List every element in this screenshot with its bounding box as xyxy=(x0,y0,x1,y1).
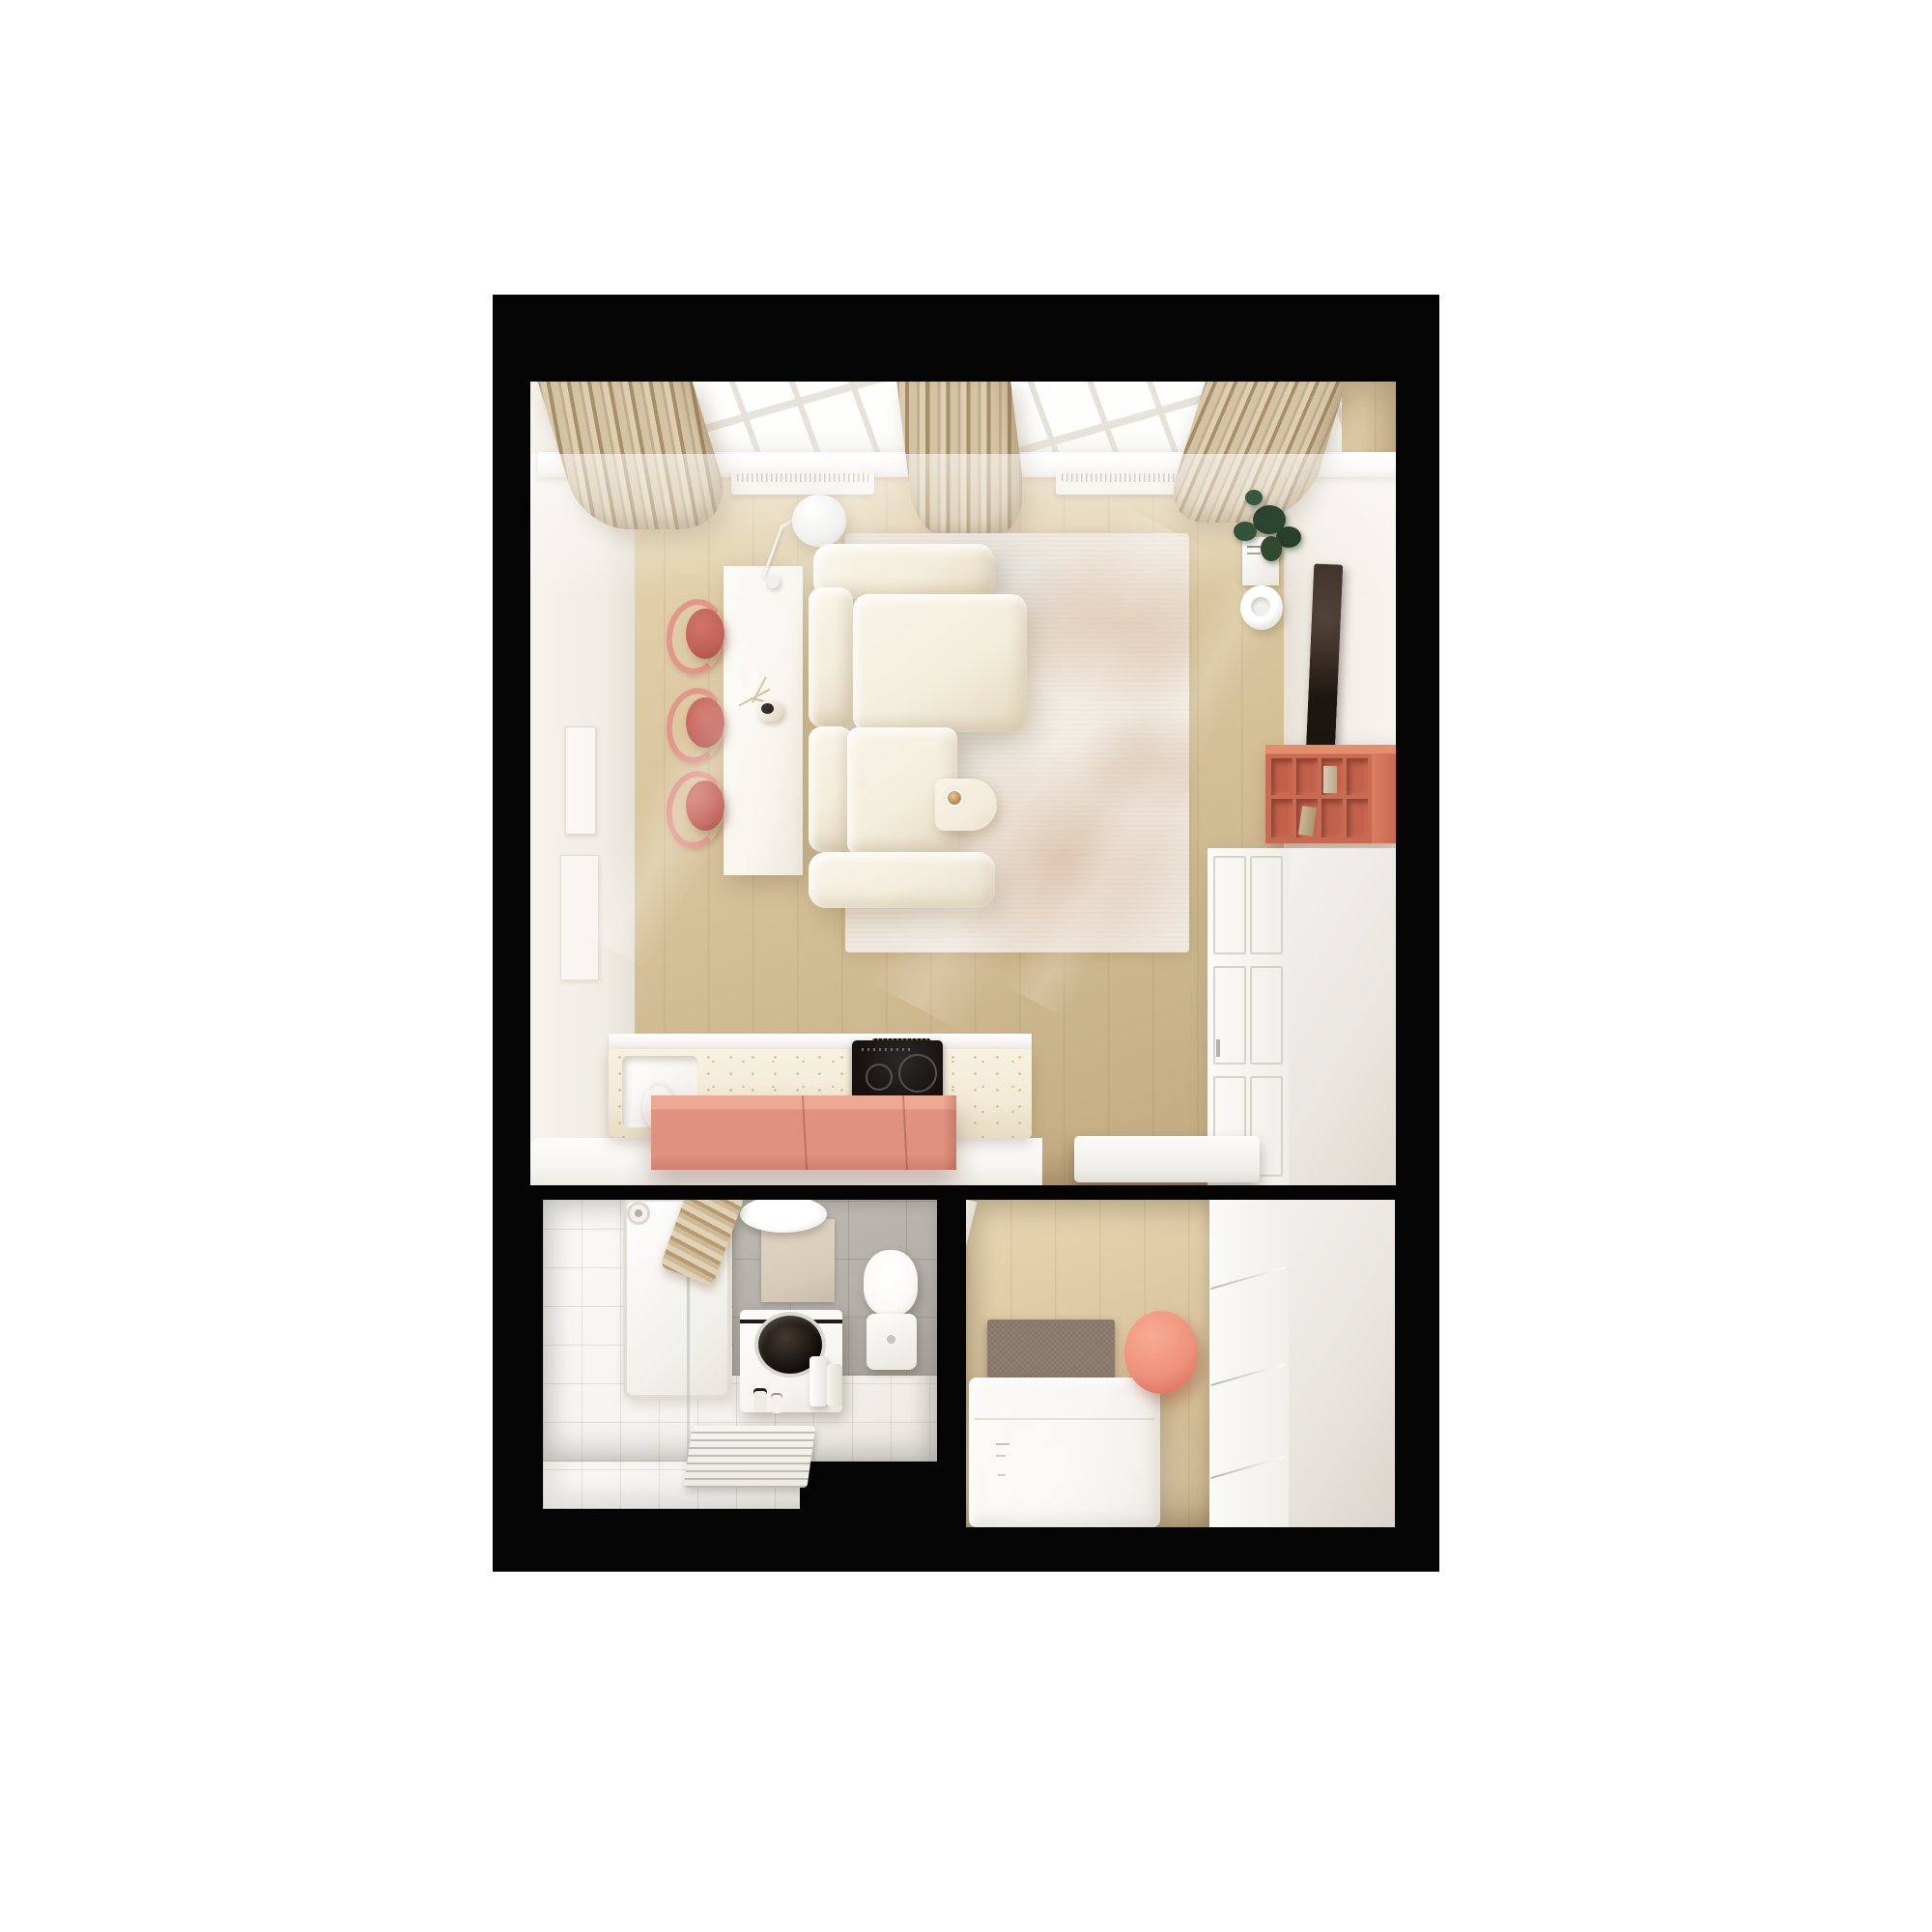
wardrobe-drawer-seam xyxy=(1210,1456,1285,1479)
curtain-middle xyxy=(896,382,1030,539)
detergent-bottle xyxy=(810,1356,827,1406)
coral-stool xyxy=(686,697,724,748)
wardrobe-drawer-seam xyxy=(1210,1363,1285,1386)
open-door-leaf xyxy=(966,1200,977,1281)
sofa-back-cushion xyxy=(809,587,853,727)
coral-kitchen-island xyxy=(651,1095,956,1170)
pillow-stitch xyxy=(996,1455,1006,1457)
sofa-chaise xyxy=(853,594,1027,732)
bed-duvet xyxy=(969,1378,1160,1527)
coral-pouf xyxy=(1124,1311,1198,1394)
potted-plant-leaf xyxy=(1245,490,1263,505)
floor-plan-canvas xyxy=(0,0,1932,1932)
wardrobe-side xyxy=(1289,1200,1395,1527)
wardrobe-drawer-seam xyxy=(1210,1266,1285,1290)
shelf-books xyxy=(1323,766,1337,793)
wall-bowl-inner xyxy=(1251,597,1270,616)
toilet-flush-button xyxy=(887,1335,895,1344)
shelf-side-face xyxy=(1372,753,1396,843)
coral-cube-shelf xyxy=(1265,745,1396,843)
living-room-kitchen xyxy=(530,382,1396,1185)
floor-lamp-shade xyxy=(792,495,846,547)
cabinet-side-face xyxy=(1289,848,1396,1185)
book-text-lines xyxy=(1247,553,1261,554)
wall-art-frame xyxy=(565,726,596,835)
cabinet-handle xyxy=(1216,1039,1220,1057)
pillow-stitch xyxy=(996,1443,1009,1445)
small-bottle xyxy=(753,1391,767,1412)
white-cabinet xyxy=(1207,848,1396,1185)
small-bottle xyxy=(771,1395,782,1413)
pillow-stitch xyxy=(998,1474,1006,1476)
wardrobe-front xyxy=(1209,1200,1289,1527)
bathroom-items xyxy=(543,1200,937,1509)
cabinet-door-face xyxy=(1207,848,1289,1185)
coral-stool xyxy=(686,609,724,659)
entry-bench xyxy=(1074,1136,1260,1182)
floor-lamp-base xyxy=(766,575,780,588)
shower-head-nozzle xyxy=(635,1209,642,1217)
sofa-armrest-bottom xyxy=(809,852,995,908)
vase-with-branches xyxy=(731,679,793,735)
detergent-bottle xyxy=(827,1364,842,1406)
bath-mat xyxy=(684,1426,816,1488)
potted-plant-leaf xyxy=(1261,536,1282,561)
radiator xyxy=(731,469,874,495)
toilet-lid xyxy=(864,1250,918,1316)
potted-plant-leaf xyxy=(1234,522,1257,541)
bedroom xyxy=(966,1200,1395,1527)
induction-hob xyxy=(852,1040,943,1100)
coral-stool xyxy=(686,781,724,831)
coffee-drink xyxy=(948,791,961,805)
wall-art-frame xyxy=(560,855,599,980)
